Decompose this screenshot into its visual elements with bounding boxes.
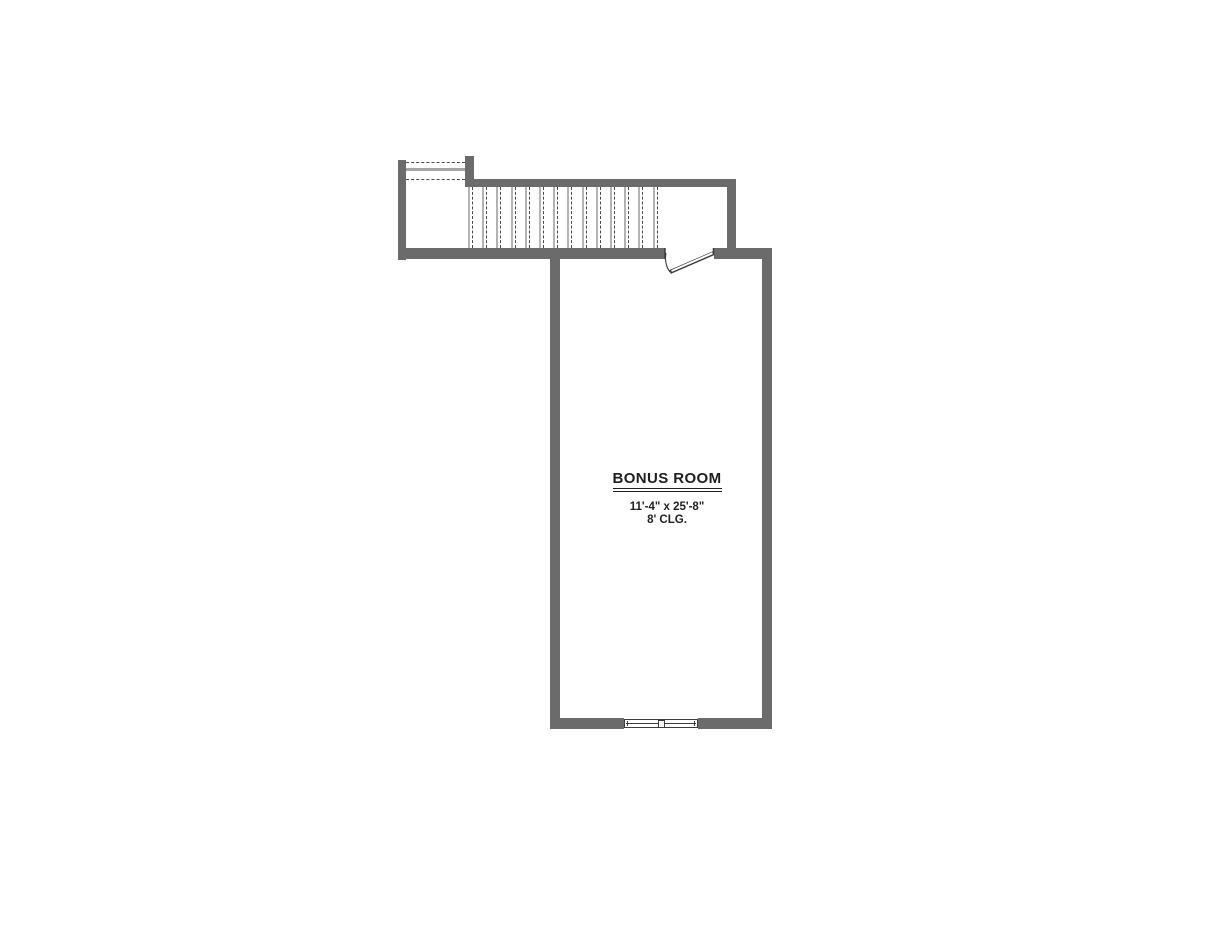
tread-solid-line <box>596 187 598 248</box>
stair-right-wall <box>727 179 736 248</box>
tread-solid-line <box>553 187 555 248</box>
tread-dashed-line <box>571 187 572 248</box>
tread-solid-line <box>525 187 527 248</box>
tread-solid-line <box>567 187 569 248</box>
tread-dashed-line <box>628 187 629 248</box>
stair-tread <box>539 187 549 248</box>
tread-dashed-line <box>515 187 516 248</box>
tread-dashed-line <box>472 187 473 248</box>
landing-dashed-line-bottom <box>406 179 465 180</box>
stair-tread <box>496 187 506 248</box>
door-swing-arc <box>666 253 671 272</box>
stair-left-wall <box>398 160 406 260</box>
tread-dashed-line <box>557 187 558 248</box>
window-symbol <box>624 719 698 728</box>
stair-tread <box>468 187 478 248</box>
tread-dashed-line <box>500 187 501 248</box>
stair-tread <box>596 187 606 248</box>
room-bottom-wall-right <box>698 718 772 729</box>
stair-treads <box>468 187 664 248</box>
stair-tread <box>610 187 620 248</box>
tread-solid-line <box>610 187 612 248</box>
stair-tread <box>653 187 663 248</box>
stair-tread <box>553 187 563 248</box>
tread-solid-line <box>482 187 484 248</box>
tread-dashed-line <box>586 187 587 248</box>
tread-dashed-line <box>657 187 658 248</box>
door-leaf-inner <box>672 253 713 271</box>
window-mullion <box>658 720 665 728</box>
window-end-tick-right <box>694 721 695 726</box>
window-end-tick-left <box>627 721 628 726</box>
landing-dashed-line-top <box>406 162 465 163</box>
stair-tread <box>511 187 521 248</box>
tread-solid-line <box>539 187 541 248</box>
floor-plan: BONUS ROOM 11'-4" x 25'-8" 8' CLG. <box>0 0 1219 945</box>
tread-dashed-line <box>543 187 544 248</box>
room-name-label: BONUS ROOM <box>557 470 777 492</box>
tread-dashed-line <box>600 187 601 248</box>
room-name-text: BONUS ROOM <box>613 470 722 492</box>
stair-tread <box>624 187 634 248</box>
room-dimensions-label: 11'-4" x 25'-8" <box>557 501 777 513</box>
stair-tread <box>525 187 535 248</box>
tread-solid-line <box>638 187 640 248</box>
tread-dashed-line <box>529 187 530 248</box>
room-bottom-wall-left <box>550 718 624 729</box>
tread-dashed-line <box>642 187 643 248</box>
stair-tread <box>567 187 577 248</box>
stair-tread <box>582 187 592 248</box>
stair-tread <box>482 187 492 248</box>
stair-top-wall <box>465 179 736 187</box>
tread-dashed-line <box>486 187 487 248</box>
tread-solid-line <box>496 187 498 248</box>
tread-solid-line <box>624 187 626 248</box>
stair-tread <box>638 187 648 248</box>
door-symbol <box>655 243 725 283</box>
room-ceiling-label: 8' CLG. <box>557 514 777 526</box>
tread-solid-line <box>653 187 655 248</box>
tread-dashed-line <box>614 187 615 248</box>
tread-solid-line <box>468 187 470 248</box>
room-top-wall-left <box>398 248 665 259</box>
landing-solid-line <box>406 168 465 171</box>
tread-solid-line <box>511 187 513 248</box>
tread-solid-line <box>582 187 584 248</box>
